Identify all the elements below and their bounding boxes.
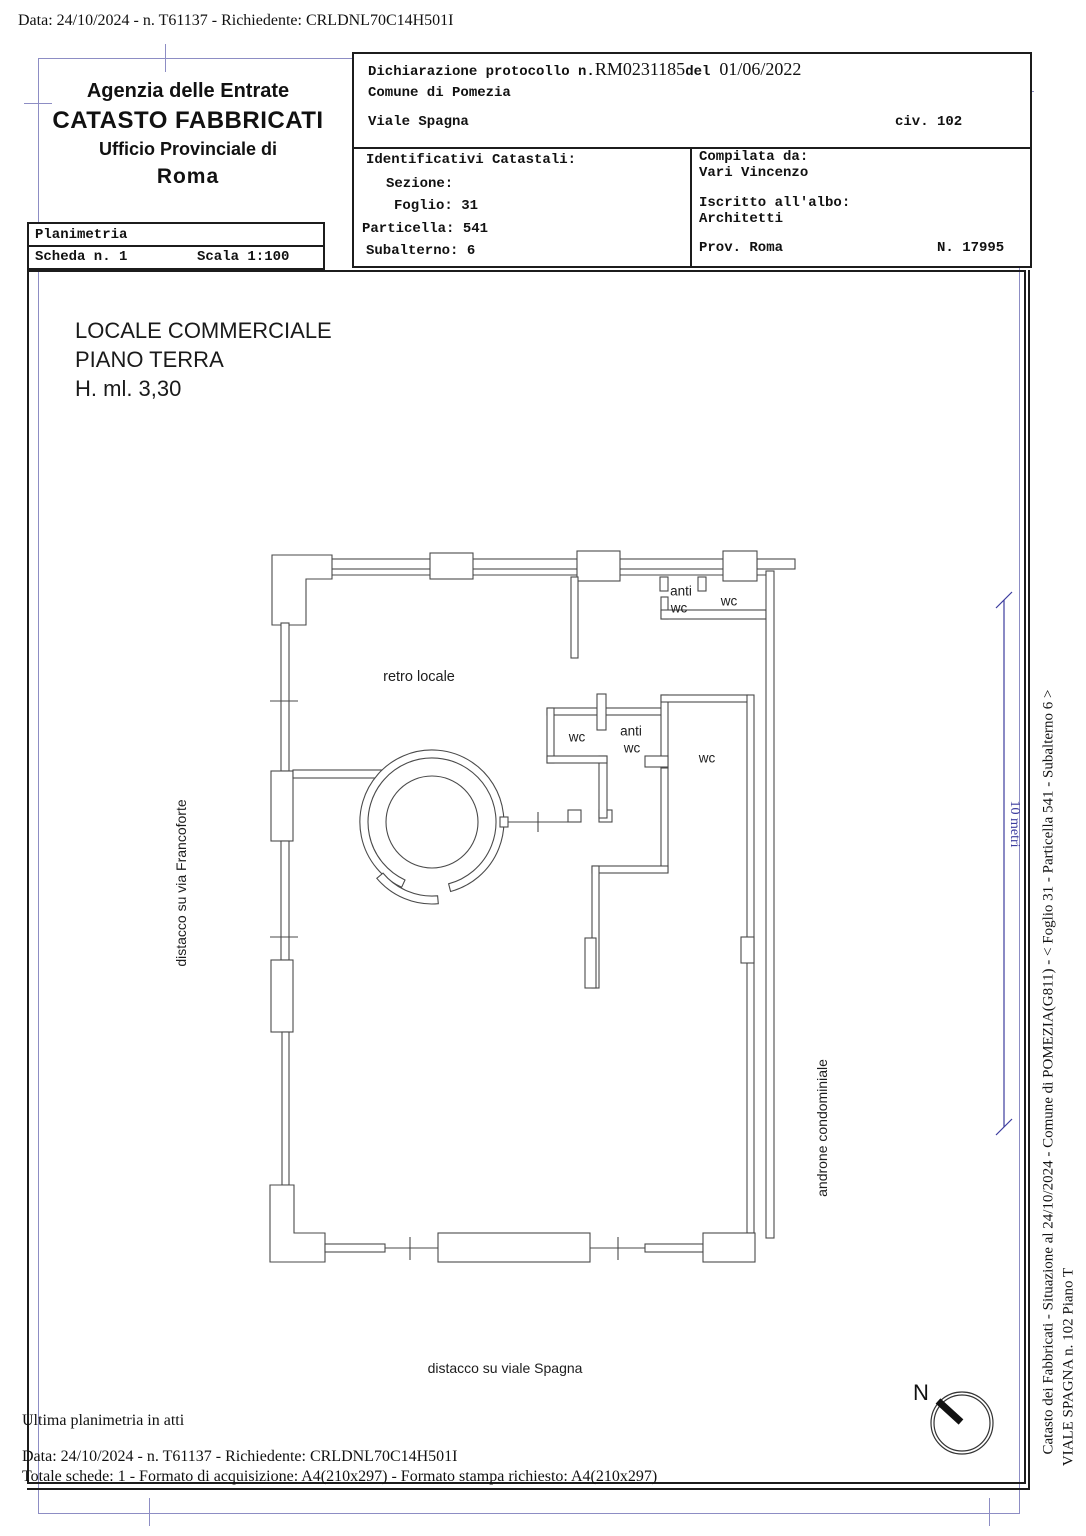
plan-title: LOCALE COMMERCIALE PIANO TERRA H. ml. 3,…: [75, 316, 332, 403]
plan-box-bottom-outer: [27, 1488, 1030, 1490]
margin-address-line: VIALE SPAGNA n. 102 Piano T: [1061, 1268, 1078, 1466]
iscritto-albo: Iscritto all'albo:: [699, 195, 850, 211]
catasto-title: CATASTO FABBRICATI: [48, 105, 328, 136]
footer-ultima: Ultima planimetria in atti: [22, 1412, 184, 1430]
pillar-left-2: [271, 960, 293, 1032]
room-label-antiwc-mid-1: anti: [620, 724, 642, 739]
compilatore: Vari Vincenzo: [699, 165, 808, 181]
civico-label: civ. 102: [895, 114, 962, 130]
margin-cadastre-line: Catasto dei Fabbricati - Situazione al 2…: [1041, 690, 1058, 1455]
frame-tick-bottom-left: [149, 1498, 150, 1526]
pillar-top-1: [430, 553, 473, 579]
ident-title: Identificativi Catastali:: [366, 152, 576, 168]
footer-data: Data: 24/10/2024 - n. T61137 - Richieden…: [22, 1448, 458, 1466]
sezione: Sezione:: [386, 176, 453, 192]
albo-number: N. 17995: [937, 240, 1004, 256]
street-label: Viale Spagna: [368, 114, 469, 130]
compass-north-label: N: [913, 1380, 929, 1405]
spiral-stair-ring: [360, 750, 504, 892]
office-line: Ufficio Provinciale di: [48, 136, 328, 163]
dimension-line: [985, 585, 1025, 1145]
footer-totale: Totale schede: 1 - Formato di acquisizio…: [22, 1468, 657, 1486]
planimetria-label: Planimetria: [35, 227, 127, 243]
label-androne-condominiale: androne condominiale: [814, 1059, 830, 1197]
scheda-label: Scheda n. 1: [35, 249, 127, 265]
pillar-left-1: [271, 771, 293, 841]
protocol-label: Dichiarazione protocollo n.: [368, 64, 595, 80]
room-label-wc-small: wc: [569, 730, 586, 745]
frame-tick-top: [165, 44, 166, 72]
box-vdivider: [690, 147, 692, 266]
requester-line: Data: 24/10/2024 - n. T61137 - Richieden…: [18, 12, 454, 30]
box-hdivider: [354, 147, 1030, 149]
particella: Particella: 541: [362, 221, 488, 237]
spiral-stair-segment: [377, 873, 439, 904]
foglio: Foglio: 31: [394, 198, 478, 214]
planimetria-divider: [29, 245, 323, 247]
agency-header: Agenzia delle Entrate CATASTO FABBRICATI…: [48, 78, 328, 190]
declaration-box: Dichiarazione protocollo n.RM0231185del …: [352, 52, 1032, 268]
frame-tick-bottom-right: [989, 1498, 990, 1526]
plan-title-line1: LOCALE COMMERCIALE: [75, 316, 332, 345]
floor-plan-drawing: [250, 540, 825, 1280]
room-label-antiwc-top-1: anti: [670, 584, 692, 599]
compilata-da: Compilata da:: [699, 149, 808, 165]
compass-icon: N: [895, 1380, 1005, 1470]
comune-label: Comune di Pomezia: [368, 85, 511, 101]
pillar-top-right: [723, 551, 757, 581]
scala-label: Scala 1:100: [197, 249, 289, 265]
pillar-top-2: [577, 551, 620, 581]
room-label-antiwc-mid-2: wc: [624, 741, 641, 756]
pillar-top-left: [272, 555, 332, 625]
pillar-bottom-left: [270, 1185, 325, 1262]
protocol-line: Dichiarazione protocollo n.RM0231185del …: [368, 59, 801, 80]
plan-title-line3: H. ml. 3,30: [75, 374, 332, 403]
albo: Architetti: [699, 211, 783, 227]
provincia: Prov. Roma: [699, 240, 783, 256]
spiral-stair-hub: [386, 776, 478, 868]
room-label-antiwc-top-2: wc: [671, 601, 688, 616]
plan-box-right-outer: [1028, 270, 1030, 1490]
label-distacco-spagna: distacco su viale Spagna: [428, 1360, 583, 1376]
scale-bar-label: 10 metri: [1006, 800, 1022, 847]
agency-name: Agenzia delle Entrate: [48, 78, 328, 105]
planimetria-box: Planimetria Scheda n. 1 Scala 1:100: [27, 222, 325, 270]
protocol-number: RM0231185: [595, 59, 685, 79]
pillar-bottom-right: [703, 1233, 755, 1262]
label-distacco-francoforte: distacco su via Francoforte: [173, 799, 189, 966]
room-label-wc-top: wc: [721, 594, 738, 609]
office-city: Roma: [48, 163, 328, 190]
entrance-block: [438, 1233, 590, 1262]
subalterno: Subalterno: 6: [366, 243, 475, 259]
room-label-retro-locale: retro locale: [383, 669, 455, 685]
protocol-del: del: [685, 64, 710, 80]
plan-title-line2: PIANO TERRA: [75, 345, 332, 374]
room-label-wc-big: wc: [699, 751, 716, 766]
protocol-date-value: 01/06/2022: [719, 59, 801, 79]
